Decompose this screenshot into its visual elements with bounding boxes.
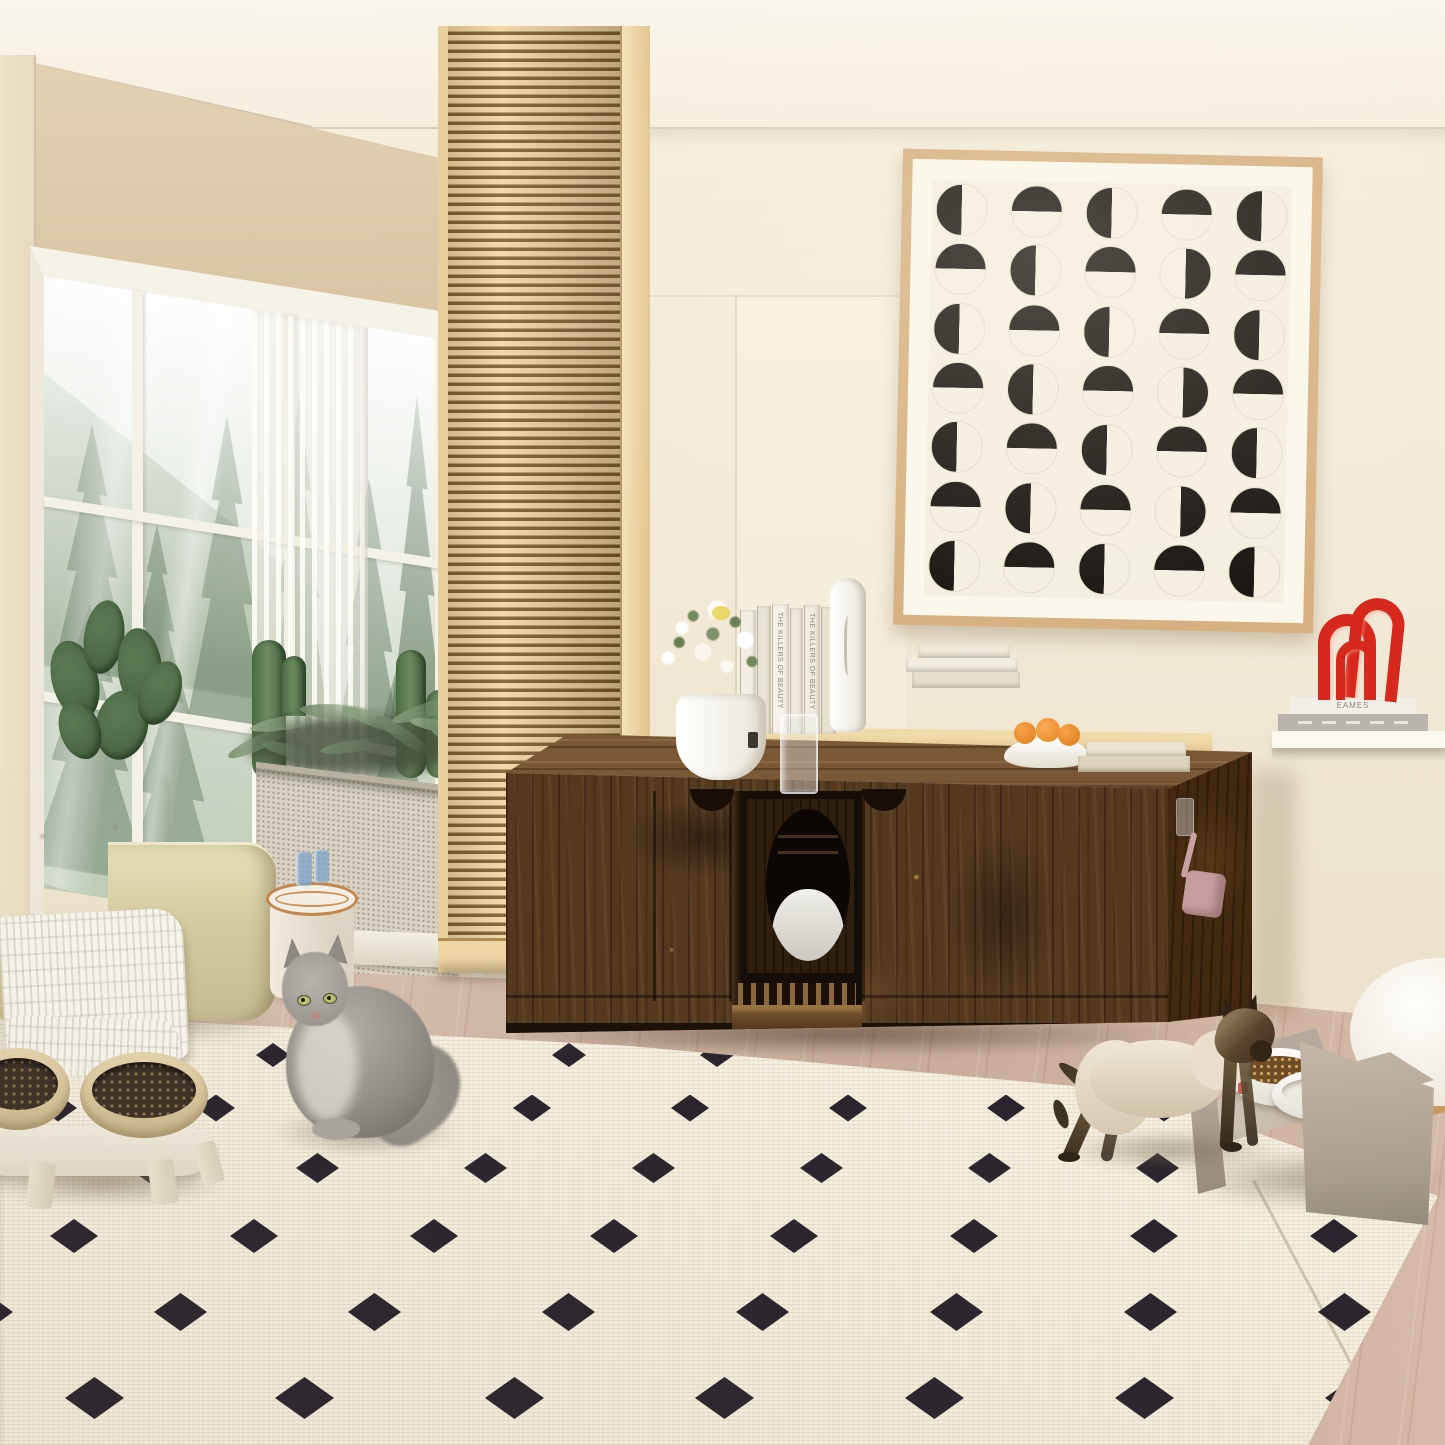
bowl-food <box>0 1058 58 1110</box>
siamese-paw <box>1058 1152 1080 1162</box>
siamese-muzzle <box>1250 1040 1272 1062</box>
gray-cat-paws <box>312 1118 360 1140</box>
art-half-circle <box>935 183 988 236</box>
rug-diamond <box>275 1377 334 1419</box>
art-half-circle <box>1083 305 1136 358</box>
gray-cat-pupil <box>301 998 305 1002</box>
rug-diamond <box>770 1219 818 1253</box>
rug-diamond <box>542 1293 595 1331</box>
art-half-circle <box>1084 246 1137 299</box>
art-half-circle <box>934 243 987 296</box>
gray-cat-nose <box>311 1012 320 1019</box>
art-half-circle <box>1233 308 1286 361</box>
rug-diamond <box>1130 1219 1178 1253</box>
art-half-circle <box>933 302 986 355</box>
art-half-circle <box>930 421 983 474</box>
feeder-leg <box>26 1161 57 1209</box>
face-sculpture-detail <box>844 616 854 676</box>
art-half-circle <box>931 361 984 414</box>
rug-diamond <box>410 1219 458 1253</box>
litter-box-niche <box>732 791 862 1017</box>
litter-scoop <box>1181 869 1227 918</box>
rug-diamond <box>464 1153 507 1183</box>
side-table-top <box>266 882 358 916</box>
door-pull-notch <box>862 789 906 811</box>
art-half-circle <box>1230 427 1283 480</box>
rug-diamond <box>632 1153 675 1183</box>
rug-diamond <box>65 1377 124 1419</box>
rug-diamond <box>256 1043 290 1067</box>
left-feeder-bowl <box>80 1052 208 1138</box>
adhesive-hook <box>1176 798 1194 836</box>
art-half-circle <box>1154 485 1207 538</box>
gray-cat-pupil <box>327 996 331 1000</box>
art-half-circle <box>1004 482 1057 535</box>
gray-cat-chest <box>296 1012 358 1122</box>
rug-diamond <box>348 1293 401 1331</box>
stacked-book <box>912 672 1020 688</box>
rug-diamond <box>296 1153 339 1183</box>
niche-divider-panel <box>746 799 854 973</box>
rug-diamond <box>485 1377 544 1419</box>
art-half-circle <box>1156 366 1209 419</box>
orange <box>1036 718 1060 742</box>
art-half-circle <box>1006 363 1059 416</box>
art-half-circle <box>1228 546 1281 599</box>
art-half-circle <box>928 539 981 592</box>
cabinet-wall-shadow <box>1250 770 1296 1015</box>
gray-book <box>1278 714 1428 731</box>
interior-slat <box>778 851 838 854</box>
rug-diamond <box>154 1293 207 1331</box>
art-half-circle <box>1153 544 1206 597</box>
interior-slat <box>778 835 838 838</box>
slat-panel-frame <box>438 26 448 970</box>
art-half-circle <box>1079 483 1132 536</box>
cabinet-front <box>506 773 1168 1033</box>
cat-entry-hole <box>766 809 850 961</box>
rug-diamond <box>671 1095 709 1122</box>
art-half-circle <box>1010 185 1063 238</box>
rug-diamond <box>1124 1293 1177 1331</box>
rug-diamond <box>1310 1219 1358 1253</box>
white-flower-bouquet <box>640 580 780 700</box>
door-gap <box>862 791 865 1001</box>
art-half-circle <box>1231 368 1284 421</box>
rug-diamond <box>930 1293 983 1331</box>
art-half-circle <box>1234 249 1287 302</box>
book-spine-text: THE KILLERS OF BEAUTY <box>808 613 815 710</box>
rug-diamond <box>800 1153 843 1183</box>
art-half-circle <box>1229 486 1282 539</box>
art-half-circle <box>1009 244 1062 297</box>
rug-diamond <box>968 1153 1011 1183</box>
gray-book-spine-text <box>1298 721 1408 724</box>
door-pull-notch <box>690 789 734 811</box>
rug-diamond <box>513 1095 551 1122</box>
art-half-circle <box>1085 187 1138 240</box>
art-half-circle <box>1235 190 1288 243</box>
rug-diamond <box>829 1095 867 1122</box>
art-half-circle <box>1081 364 1134 417</box>
rug-diamond <box>1318 1293 1371 1331</box>
blue-glass-cup <box>314 850 329 883</box>
flower-center <box>712 606 730 620</box>
living-room-photo: THE KILLERS OF BEAUTYTHE KILLERS OF BEAU… <box>0 0 1445 1445</box>
rug-diamond <box>950 1219 998 1253</box>
wall-art-canvas <box>924 179 1293 602</box>
art-half-circle <box>1008 304 1061 357</box>
rug-diamond <box>1115 1377 1174 1419</box>
red-arch-sculpture <box>1336 640 1376 700</box>
wall-art-mat <box>903 159 1312 623</box>
art-half-circle <box>1158 307 1211 360</box>
art-half-circle <box>1005 422 1058 475</box>
rug-diamond <box>552 1043 586 1067</box>
rug-diamond <box>230 1219 278 1253</box>
stacked-book <box>906 658 1018 672</box>
book-on-cabinet <box>1078 756 1190 772</box>
ceiling-shadow <box>648 129 1445 147</box>
rug-diamond <box>736 1293 789 1331</box>
rug-diamond <box>590 1219 638 1253</box>
art-half-circle <box>1160 188 1213 241</box>
glass-vase <box>780 714 818 794</box>
siamese-paw <box>1222 1142 1242 1152</box>
vase-tag <box>748 732 758 748</box>
rug-diamond <box>987 1095 1025 1122</box>
blue-glass-cup <box>296 852 312 886</box>
art-half-circle <box>1155 425 1208 478</box>
orange <box>1058 724 1080 746</box>
orange <box>1014 722 1036 744</box>
book-on-cabinet <box>1086 742 1186 756</box>
art-half-circle <box>1078 542 1131 595</box>
stacked-book <box>918 646 1010 658</box>
rug-diamond <box>695 1377 754 1419</box>
rug-diamond <box>905 1377 964 1419</box>
art-half-circle <box>929 480 982 533</box>
face-sculpture-vase <box>830 578 866 732</box>
litter-box <box>772 889 844 961</box>
rug-diamond <box>50 1219 98 1253</box>
wall-nook-edge <box>648 295 900 297</box>
right-wall-shelf <box>1272 731 1445 748</box>
right-shelf-shadow <box>1272 748 1445 762</box>
door-gap <box>653 791 656 1001</box>
rug-diamond <box>0 1293 13 1331</box>
art-half-circle <box>1159 247 1212 300</box>
bowl-food <box>92 1062 196 1118</box>
wall-art-frame <box>893 149 1323 634</box>
art-half-circle <box>1003 541 1056 594</box>
art-half-circle <box>1080 424 1133 477</box>
